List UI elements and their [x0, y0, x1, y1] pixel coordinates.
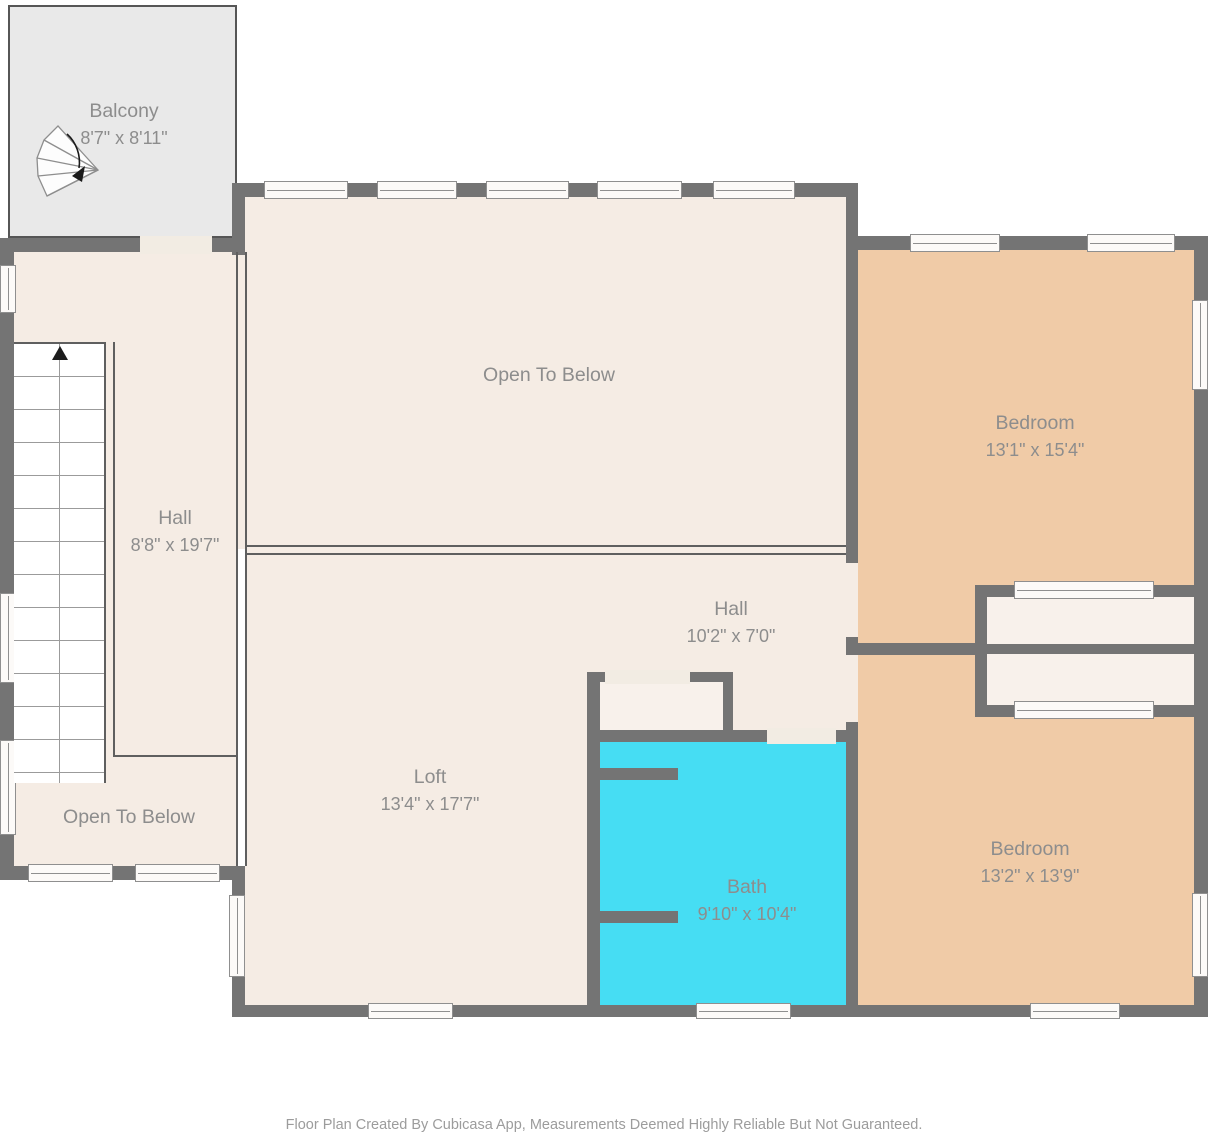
wall [1152, 585, 1196, 597]
wall [985, 705, 1017, 717]
room-name: Bedroom [920, 835, 1140, 863]
room-dims: 10'2" x 7'0" [621, 623, 841, 650]
room-dims: 8'7" x 8'11" [14, 125, 234, 152]
room-label-bedroom-top: Bedroom 13'1" x 15'4" [925, 409, 1145, 464]
room-name: Loft [320, 763, 540, 791]
open-to-below-boundary [245, 252, 247, 866]
wall [846, 637, 858, 655]
room-dims: 13'4" x 17'7" [320, 791, 540, 818]
staircase [14, 342, 104, 783]
window [377, 181, 457, 199]
room-label-open-to-below-top: Open To Below [439, 361, 659, 389]
wall [587, 730, 767, 742]
floor-plan: Balcony 8'7" x 8'11" Open To Below Bedro… [0, 0, 1208, 1134]
open-to-below-boundary [247, 553, 846, 555]
room-name: Open To Below [439, 361, 659, 389]
wall [858, 643, 985, 655]
window [264, 181, 348, 199]
wall [985, 644, 1194, 654]
wall [846, 722, 858, 1005]
room-dims: 8'8" x 19'7" [65, 532, 285, 559]
open-to-below-boundary [113, 755, 238, 757]
room-bedroom-bottom [858, 655, 975, 717]
room-dims: 13'1" x 15'4" [925, 437, 1145, 464]
wall [587, 730, 600, 1005]
room-name: Hall [621, 595, 841, 623]
room-name: Bath [637, 873, 857, 901]
wall [587, 672, 605, 682]
sliding-door-closet-bottom [1014, 701, 1154, 719]
door-opening-bath-closet [605, 670, 690, 684]
room-name: Open To Below [19, 803, 239, 831]
window [696, 1003, 791, 1019]
window [486, 181, 569, 199]
window [28, 864, 113, 882]
closet-top [987, 597, 1194, 644]
sliding-door-closet-top [1014, 581, 1154, 599]
window [1030, 1003, 1120, 1019]
window [368, 1003, 453, 1019]
room-dims: 13'2" x 13'9" [920, 863, 1140, 890]
wall [690, 672, 733, 682]
window [713, 181, 795, 199]
window [1087, 234, 1175, 252]
footer-disclaimer: Floor Plan Created By Cubicasa App, Meas… [0, 1117, 1208, 1133]
room-name: Hall [65, 504, 285, 532]
room-label-loft: Loft 13'4" x 17'7" [320, 763, 540, 818]
wall [232, 183, 245, 255]
room-label-balcony: Balcony 8'7" x 8'11" [14, 97, 234, 152]
wall [836, 730, 858, 742]
wall [723, 682, 733, 730]
up-arrow-icon [52, 346, 68, 360]
stairs-railing [104, 342, 106, 783]
door-opening-bath [767, 728, 836, 744]
wall [1152, 705, 1196, 717]
room-label-bedroom-bottom: Bedroom 13'2" x 13'9" [920, 835, 1140, 890]
room-name: Bedroom [925, 409, 1145, 437]
window [1192, 300, 1208, 390]
window [1192, 893, 1208, 977]
room-label-open-to-below-bottom: Open To Below [19, 803, 239, 831]
wall [985, 585, 1017, 597]
bath-closet [600, 682, 723, 730]
room-label-hall-left: Hall 8'8" x 19'7" [65, 504, 285, 559]
room-label-bath: Bath 9'10" x 10'4" [637, 873, 857, 928]
room-dims: 9'10" x 10'4" [637, 901, 857, 928]
staircase-divider [59, 344, 60, 783]
door-opening-balcony [140, 236, 212, 254]
door-opening-bedroom-bottom [846, 655, 858, 722]
closet-bottom [987, 654, 1194, 705]
wall [846, 183, 858, 563]
open-to-below-boundary [236, 252, 238, 866]
room-label-hall-center: Hall 10'2" x 7'0" [621, 595, 841, 650]
open-to-below-boundary [247, 545, 846, 547]
room-name: Balcony [14, 97, 234, 125]
window [229, 895, 245, 977]
window [0, 265, 16, 313]
door-opening-bedroom-top [846, 563, 858, 637]
wall [600, 768, 678, 780]
window [910, 234, 1000, 252]
window [597, 181, 682, 199]
window [135, 864, 220, 882]
room-bedroom-top [858, 585, 975, 643]
